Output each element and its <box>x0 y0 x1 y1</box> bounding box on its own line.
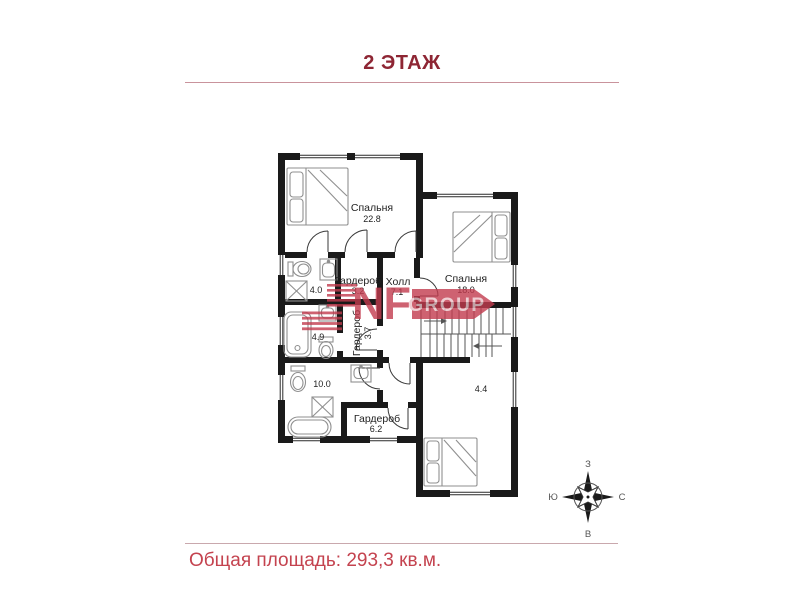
door-arc <box>395 231 416 252</box>
window <box>278 375 285 400</box>
floor-plan-svg: Спальня 22.8 Гардероб 3.2 Холл 7.1 Спаль… <box>0 0 800 600</box>
shower-icon <box>312 397 333 417</box>
compass-label-right: С <box>619 492 626 503</box>
room-area-bedroom-1: 22.8 <box>363 214 381 224</box>
compass-rose: З С В Ю <box>548 459 625 540</box>
window <box>278 255 285 275</box>
page: { "header": { "title": "2 ЭТАЖ" }, "foot… <box>0 0 800 600</box>
stair-arrow-down <box>473 343 502 349</box>
compass-label-bottom: В <box>585 529 591 540</box>
room-area-4-4: 4.4 <box>475 384 488 394</box>
watermark-brand-top: NF <box>352 278 410 329</box>
window <box>511 372 518 407</box>
room-area-bath-10-0: 10.0 <box>313 379 331 389</box>
window <box>511 265 518 287</box>
window <box>300 153 347 160</box>
window <box>355 153 400 160</box>
window <box>450 490 490 497</box>
window <box>511 307 518 337</box>
bed-icon <box>424 438 477 486</box>
compass-label-top: З <box>585 459 591 470</box>
toilet-icon <box>291 366 306 392</box>
toilet-icon <box>288 262 311 277</box>
room-label-bedroom-2: Спальня <box>445 273 487 285</box>
room-label-bedroom-1: Спальня <box>351 202 393 214</box>
room-area-bath-4-0: 4.0 <box>310 285 323 295</box>
bed-icon <box>453 212 510 262</box>
compass-label-left: Ю <box>548 492 558 503</box>
window <box>370 436 397 443</box>
bed-icon <box>287 168 348 225</box>
window <box>437 192 493 199</box>
total-area-text: Общая площадь: 293,3 кв.м. <box>189 550 441 572</box>
footer-divider <box>185 543 618 544</box>
door-arc <box>345 230 367 252</box>
shower-icon <box>286 281 307 301</box>
room-area-wardrobe-6-2: 6.2 <box>370 424 383 434</box>
door-arc <box>389 363 410 384</box>
watermark-brand-bottom: GROUP <box>408 295 485 316</box>
bathtub-icon <box>288 417 331 437</box>
room-area-bath-4-9: 4.9 <box>312 332 325 342</box>
door-arc <box>307 231 328 252</box>
